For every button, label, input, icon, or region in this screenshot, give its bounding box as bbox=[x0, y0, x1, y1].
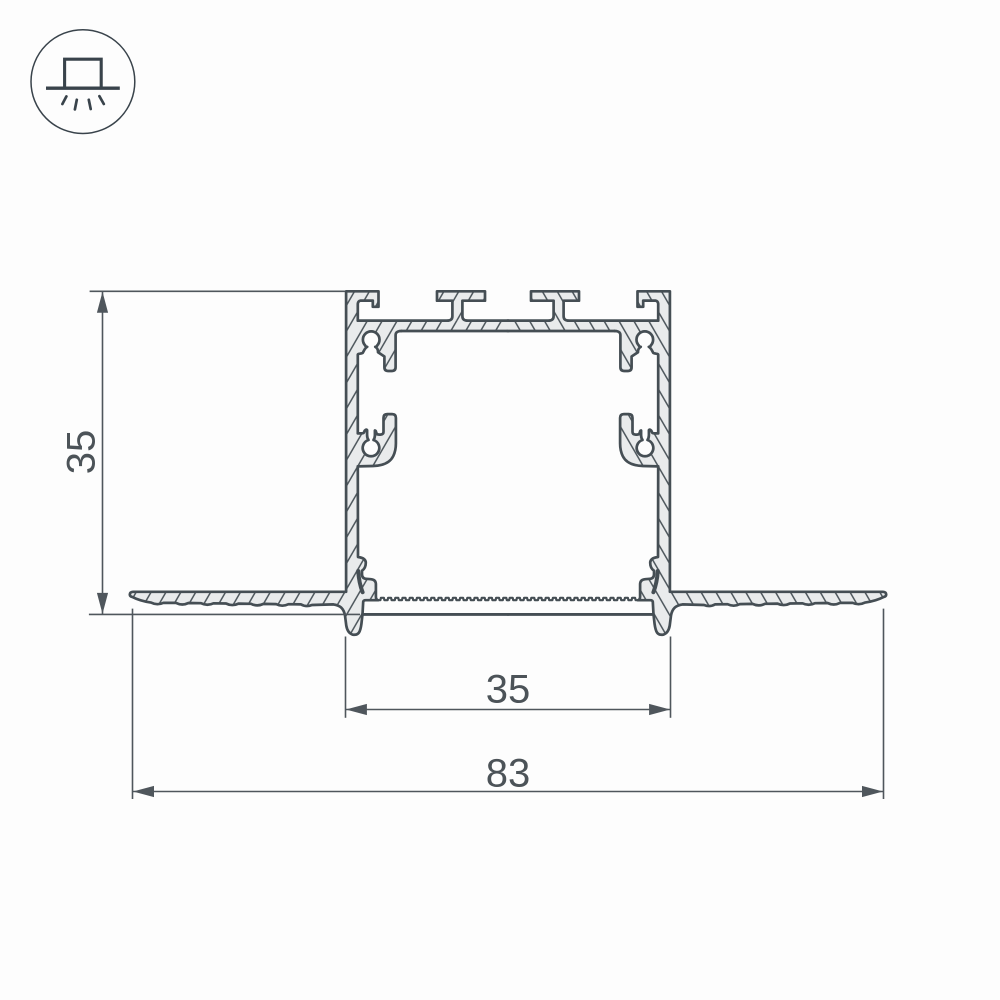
svg-text:83: 83 bbox=[486, 752, 531, 796]
svg-text:35: 35 bbox=[486, 667, 531, 711]
svg-text:35: 35 bbox=[60, 430, 104, 475]
